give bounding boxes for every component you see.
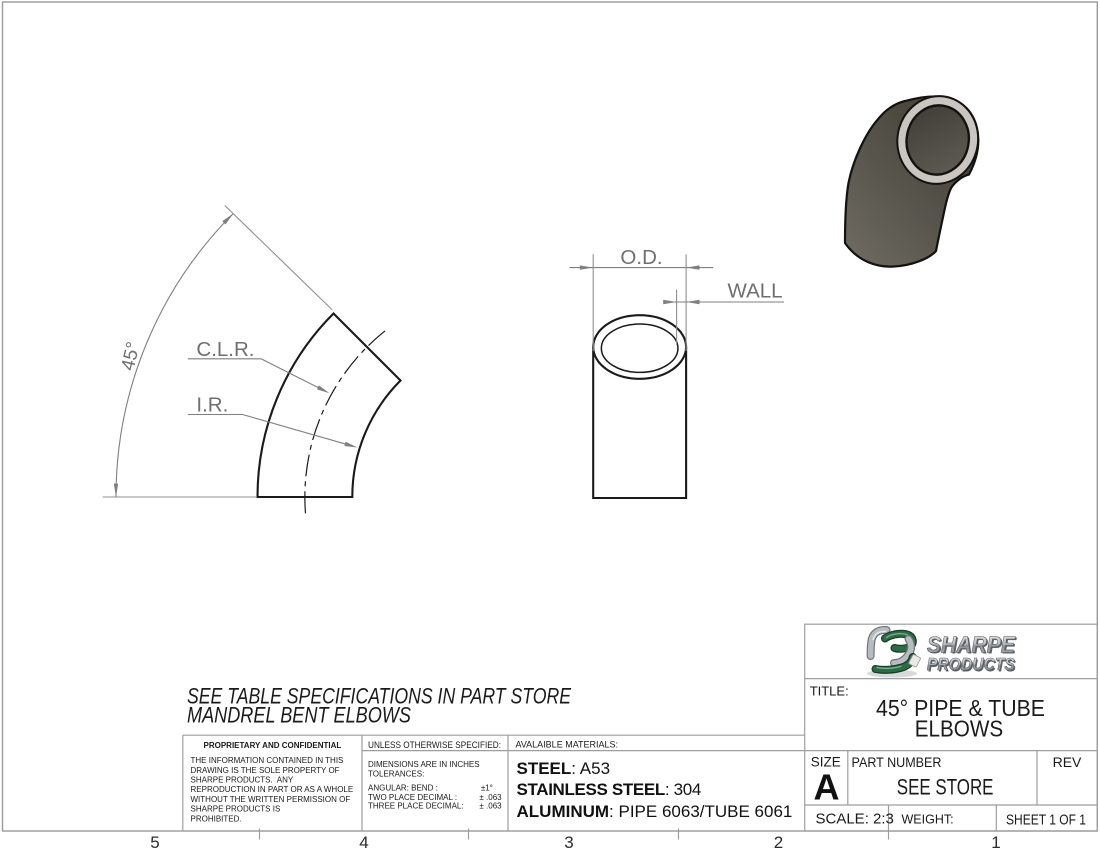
svg-text:PROPRIETARY AND CONFIDENTIAL: PROPRIETARY AND CONFIDENTIAL (204, 741, 342, 750)
svg-text:THE INFORMATION CONTAINED IN T: THE INFORMATION CONTAINED IN THIS (191, 756, 344, 765)
svg-text:REPRODUCTION IN PART OR AS A W: REPRODUCTION IN PART OR AS A WHOLE (191, 785, 354, 794)
svg-text:C.L.R.: C.L.R. (196, 338, 254, 361)
svg-text:TOLERANCES:: TOLERANCES: (368, 770, 424, 779)
svg-text:SEE STORE: SEE STORE (897, 775, 994, 800)
svg-text:ELBOWS: ELBOWS (915, 716, 1004, 742)
svg-text:PART NUMBER: PART NUMBER (852, 754, 942, 770)
svg-text:5: 5 (150, 833, 159, 850)
svg-text:REV: REV (1053, 754, 1082, 770)
svg-text:SCALE: 2:3: SCALE: 2:3 (816, 811, 894, 828)
svg-text:±1°: ±1° (481, 784, 493, 793)
svg-text:PRODUCTS: PRODUCTS (927, 654, 1015, 674)
svg-text:1: 1 (991, 833, 1000, 850)
svg-text:WALL: WALL (728, 280, 783, 303)
svg-text:SHARPE PRODUCTS IS: SHARPE PRODUCTS IS (191, 805, 281, 814)
svg-text:PROHIBITED.: PROHIBITED. (191, 814, 242, 823)
svg-text:WITHOUT THE WRITTEN PERMISSION: WITHOUT THE WRITTEN PERMISSION OF (191, 795, 351, 804)
svg-text:TITLE:: TITLE: (810, 684, 849, 699)
svg-text:I.R.: I.R. (196, 394, 228, 417)
svg-text:4: 4 (359, 833, 368, 850)
svg-text:3: 3 (564, 833, 573, 850)
svg-text:AVALAIBLE MATERIALS:: AVALAIBLE MATERIALS: (516, 740, 619, 750)
svg-text:± .063: ± .063 (479, 802, 502, 811)
svg-text:ANGULAR: BEND :: ANGULAR: BEND : (368, 784, 438, 793)
svg-text:THREE PLACE DECIMAL:: THREE PLACE DECIMAL: (368, 802, 464, 811)
svg-text:O.D.: O.D. (620, 246, 662, 269)
svg-text:UNLESS OTHERWISE SPECIFIED:: UNLESS OTHERWISE SPECIFIED: (368, 740, 501, 751)
svg-text:SHEET 1 OF 1: SHEET 1 OF 1 (1006, 812, 1086, 829)
svg-text:A: A (814, 767, 840, 808)
svg-text:ALUMINUM: PIPE 6063/TUBE 6061: ALUMINUM: PIPE 6063/TUBE 6061 (517, 802, 793, 821)
svg-text:WEIGHT:: WEIGHT: (902, 813, 954, 827)
svg-text:2: 2 (774, 833, 783, 850)
svg-text:DRAWING IS THE SOLE PROPERTY O: DRAWING IS THE SOLE PROPERTY OF (191, 766, 340, 775)
svg-text:SHARPE PRODUCTS. ANY: SHARPE PRODUCTS. ANY (191, 776, 294, 785)
svg-text:DIMENSIONS ARE IN INCHES: DIMENSIONS ARE IN INCHES (368, 760, 480, 769)
svg-text:± .063: ± .063 (479, 793, 502, 802)
svg-text:STAINLESS STEEL: 304: STAINLESS STEEL: 304 (517, 780, 701, 799)
svg-text:TWO PLACE DECIMAL :: TWO PLACE DECIMAL : (368, 793, 457, 802)
svg-text:MANDREL BENT ELBOWS: MANDREL BENT ELBOWS (187, 702, 411, 727)
svg-text:STEEL: A53: STEEL: A53 (517, 759, 611, 778)
